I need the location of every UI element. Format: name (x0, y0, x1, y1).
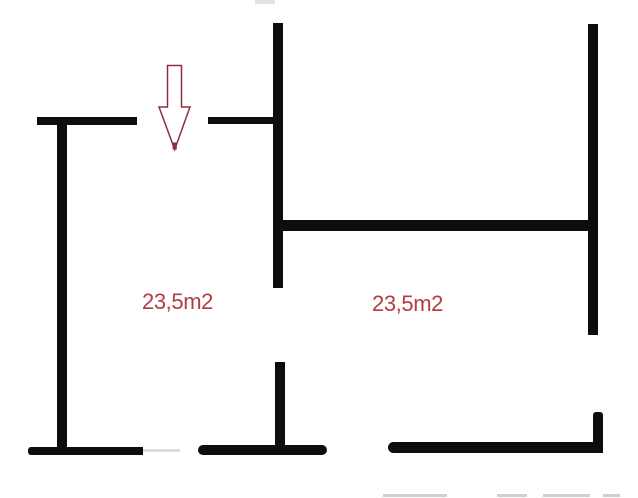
wall-center-vertical (273, 23, 283, 288)
faint-top-mark (255, 0, 275, 4)
faint-bottom-edge-4 (603, 494, 620, 497)
wall-bottom-center-vertical (275, 362, 285, 452)
wall-center-horizontal (278, 220, 598, 231)
room-left-area-label: 23,5m2 (142, 291, 213, 313)
wall-entry-right (208, 117, 281, 124)
faint-bottom-edge-2 (497, 494, 527, 497)
faint-bottom-edge-3 (543, 494, 590, 497)
wall-bottom-center-horizontal (198, 445, 327, 455)
wall-bottom-right-horizontal (388, 442, 603, 453)
faint-bottom-edge-1 (383, 494, 447, 497)
down-arrow-icon (155, 60, 195, 155)
wall-bottom-right-vertical (593, 412, 603, 453)
floor-plan: 23,5m2 23,5m2 (0, 0, 638, 498)
wall-bottom-left (28, 447, 143, 455)
wall-right-vertical (588, 24, 598, 335)
wall-entry-left-cap (37, 117, 137, 125)
room-right-area-label: 23,5m2 (372, 293, 443, 315)
wall-bottom-left-faint-extension (143, 449, 180, 452)
wall-left-vertical (57, 119, 67, 452)
